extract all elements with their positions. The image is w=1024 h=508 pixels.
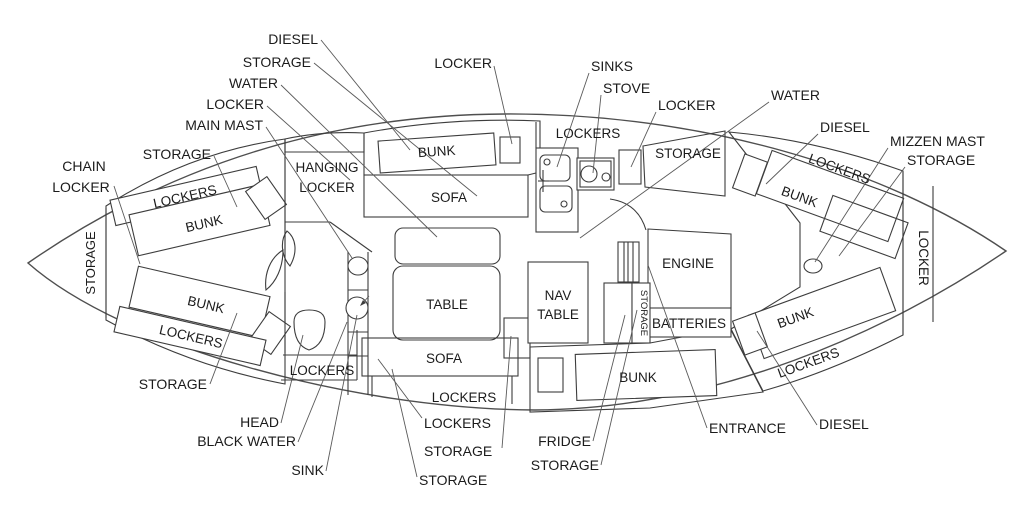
label-storage-fridge: STORAGE — [531, 457, 599, 473]
label-diesel-aft-stbd: DIESEL — [819, 416, 869, 432]
text-storage-bow: STORAGE — [83, 231, 98, 295]
label-stove: STOVE — [603, 80, 650, 96]
label-chain-locker: CHAIN — [62, 158, 106, 174]
label-chain-locker: LOCKER — [52, 179, 110, 195]
text-lockers-head: LOCKERS — [290, 363, 355, 378]
text-sofa-bottom: SOFA — [426, 351, 462, 366]
label-diesel-aft-port: DIESEL — [820, 119, 870, 135]
label-lockers-salon: LOCKERS — [424, 415, 491, 431]
main-mast-column — [348, 257, 368, 275]
text-hanging-2: LOCKER — [299, 180, 355, 195]
galley-locker — [619, 150, 641, 184]
label-storage-bow-top: STORAGE — [143, 146, 211, 162]
sink-lower — [540, 186, 572, 212]
text-nav-1: NAV — [545, 288, 572, 303]
text-bunk-quarter: BUNK — [619, 370, 657, 385]
label-fridge: FRIDGE — [538, 433, 591, 449]
label-diesel-port-fwd: DIESEL — [268, 31, 318, 47]
label-mizzen-mast: MIZZEN MAST — [890, 133, 985, 149]
text-lockers-salon-strip: LOCKERS — [432, 390, 497, 405]
table-leaf — [395, 228, 500, 264]
text-sofa-top: SOFA — [431, 190, 467, 205]
label-locker-top-center: LOCKER — [434, 55, 492, 71]
text-storage-strip: STORAGE — [638, 290, 649, 336]
label-water-port-fwd: WATER — [229, 75, 278, 91]
label-storage-port-fwd: STORAGE — [243, 54, 311, 70]
label-water-stbd: WATER — [771, 87, 820, 103]
label-storage-bow-bottom: STORAGE — [139, 376, 207, 392]
label-black-water: BLACK WATER — [197, 433, 296, 449]
text-storage-galley: STORAGE — [655, 146, 721, 161]
mizzen-mast-column — [804, 259, 822, 273]
floor-plan-svg: DIESELSTORAGEWATERLOCKERMAIN MASTCHAINLO… — [0, 0, 1024, 508]
quarter-pillow — [538, 358, 563, 392]
text-hanging-1: HANGING — [295, 160, 358, 175]
text-nav-2: TABLE — [537, 307, 579, 322]
boat-floor-plan: DIESELSTORAGEWATERLOCKERMAIN MASTCHAINLO… — [0, 0, 1024, 508]
text-bunk-pilot: BUNK — [417, 143, 455, 161]
text-locker-stern: LOCKER — [916, 230, 931, 286]
label-entrance: ENTRANCE — [709, 420, 786, 436]
label-sink: SINK — [291, 462, 324, 478]
pilot-berth-locker — [500, 137, 520, 163]
sink-upper — [540, 155, 570, 181]
label-storage-salon-1: STORAGE — [424, 443, 492, 459]
label-locker-port-fwd: LOCKER — [206, 96, 264, 112]
text-batteries: BATTERIES — [652, 316, 726, 331]
label-main-mast: MAIN MAST — [185, 117, 263, 133]
label-storage-salon-2: STORAGE — [419, 472, 487, 488]
label-head: HEAD — [240, 414, 279, 430]
text-engine: ENGINE — [662, 256, 714, 271]
text-table: TABLE — [426, 297, 468, 312]
label-locker-galley: LOCKER — [658, 97, 716, 113]
text-lockers-galley: LOCKERS — [556, 126, 621, 141]
label-storage-stern: STORAGE — [907, 152, 975, 168]
label-sinks: SINKS — [591, 58, 633, 74]
